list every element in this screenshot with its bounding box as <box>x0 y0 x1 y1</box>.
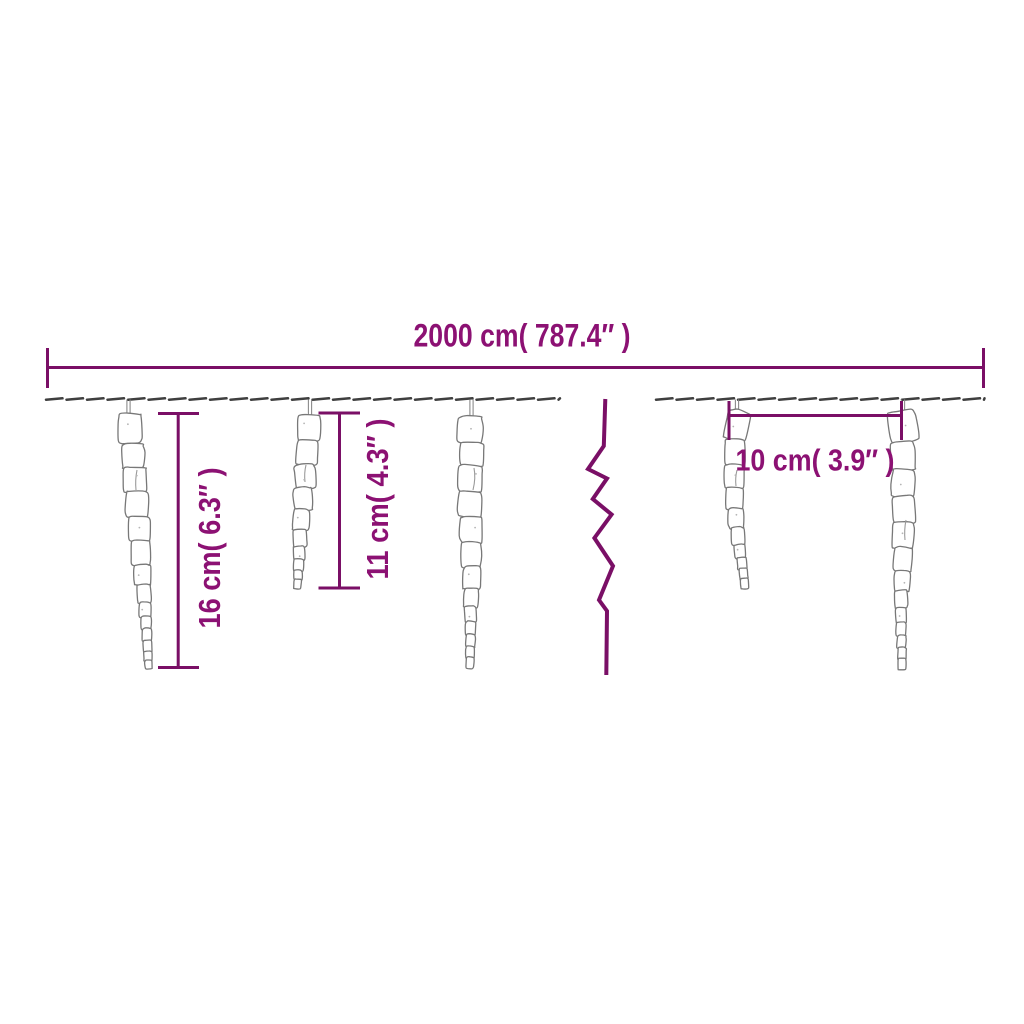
svg-text:2000 cm( 787.4″ ): 2000 cm( 787.4″ ) <box>414 318 631 354</box>
svg-text:10 cm( 3.9″ ): 10 cm( 3.9″ ) <box>736 443 895 478</box>
svg-text:16 cm( 6.3″ ): 16 cm( 6.3″ ) <box>192 468 227 629</box>
svg-text:11 cm( 4.3″ ): 11 cm( 4.3″ ) <box>360 419 395 580</box>
